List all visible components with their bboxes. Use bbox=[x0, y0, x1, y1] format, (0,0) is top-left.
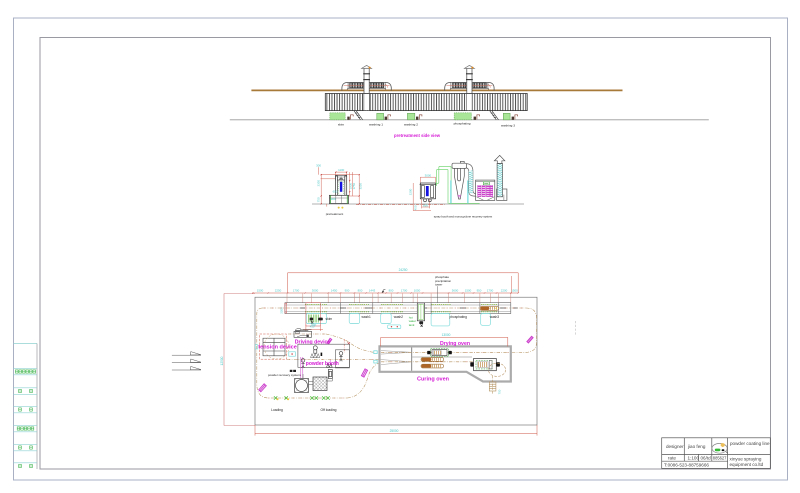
svg-text:tank: tank bbox=[409, 323, 415, 327]
svg-text:25000: 25000 bbox=[390, 429, 399, 433]
svg-text:2250: 2250 bbox=[275, 289, 282, 293]
svg-text:1700: 1700 bbox=[401, 289, 408, 293]
svg-text:900: 900 bbox=[331, 197, 336, 201]
svg-text:powder recovery system: powder recovery system bbox=[268, 373, 301, 377]
svg-text:3000: 3000 bbox=[425, 173, 432, 177]
svg-text:1750: 1750 bbox=[352, 183, 356, 190]
svg-text:Off loading: Off loading bbox=[321, 408, 337, 412]
svg-text:skim: skim bbox=[338, 122, 345, 126]
svg-text:Drying oven: Drying oven bbox=[440, 341, 470, 347]
svg-text:T:0086-523-88759666: T:0086-523-88759666 bbox=[664, 463, 709, 468]
svg-text:2200: 2200 bbox=[409, 188, 413, 195]
svg-text:900: 900 bbox=[345, 289, 350, 293]
svg-text:tension device: tension device bbox=[258, 344, 297, 350]
svg-text:1500: 1500 bbox=[257, 289, 264, 293]
svg-text:spray booth and monocyclone re: spray booth and monocyclone recovery sys… bbox=[434, 215, 493, 219]
svg-text:jiao feng: jiao feng bbox=[687, 444, 706, 449]
svg-text:885627: 885627 bbox=[713, 455, 727, 460]
svg-text:3000: 3000 bbox=[312, 289, 319, 293]
svg-text:450: 450 bbox=[310, 324, 315, 328]
svg-text:2350: 2350 bbox=[316, 180, 320, 187]
svg-text:designer: designer bbox=[666, 444, 684, 449]
svg-text:1100: 1100 bbox=[338, 168, 345, 172]
svg-text:12500: 12500 bbox=[220, 356, 224, 365]
svg-text:1500: 1500 bbox=[511, 289, 518, 293]
svg-text:450: 450 bbox=[413, 205, 417, 210]
svg-text:2200: 2200 bbox=[501, 289, 508, 293]
svg-text:wash3: wash3 bbox=[490, 315, 499, 319]
svg-text:pretreatment side view: pretreatment side view bbox=[394, 133, 441, 138]
svg-text:powder booth: powder booth bbox=[306, 361, 339, 367]
svg-text:06/td: 06/td bbox=[701, 456, 712, 461]
svg-text:phosphating: phosphating bbox=[454, 122, 471, 126]
svg-text:xinyue spraying: xinyue spraying bbox=[730, 456, 762, 461]
svg-text:washing 2: washing 2 bbox=[404, 122, 418, 126]
svg-text:600: 600 bbox=[333, 189, 338, 193]
svg-text:850: 850 bbox=[423, 203, 428, 207]
svg-text:5600: 5600 bbox=[452, 289, 459, 293]
svg-text:1500: 1500 bbox=[465, 289, 472, 293]
svg-text:800: 800 bbox=[358, 289, 363, 293]
svg-text:washing 3: washing 3 bbox=[501, 123, 515, 127]
svg-text:1050: 1050 bbox=[414, 289, 421, 293]
svg-text:skim: skim bbox=[326, 317, 333, 321]
svg-text:950: 950 bbox=[477, 289, 482, 293]
svg-text:equipment co.ltd: equipment co.ltd bbox=[730, 462, 764, 467]
svg-text:wash1: wash1 bbox=[362, 315, 371, 319]
svg-text:rate: rate bbox=[668, 456, 676, 461]
svg-text:800: 800 bbox=[389, 289, 394, 293]
svg-text:300: 300 bbox=[316, 164, 321, 168]
svg-text:1443: 1443 bbox=[369, 289, 376, 293]
svg-text:powder coating line: powder coating line bbox=[730, 441, 770, 446]
svg-text:tower: tower bbox=[435, 282, 442, 286]
svg-text:13000: 13000 bbox=[442, 333, 451, 337]
svg-text:Driving device: Driving device bbox=[295, 340, 331, 346]
svg-text:750: 750 bbox=[316, 197, 320, 202]
svg-text:washing 1: washing 1 bbox=[369, 122, 383, 126]
svg-text:Curing oven: Curing oven bbox=[417, 376, 449, 382]
svg-text:1450: 1450 bbox=[331, 289, 338, 293]
svg-text:wash2: wash2 bbox=[394, 315, 403, 319]
svg-text:3250: 3250 bbox=[358, 183, 362, 190]
svg-text:phosphating: phosphating bbox=[450, 315, 468, 319]
svg-text:1700: 1700 bbox=[487, 289, 494, 293]
svg-text:Loading: Loading bbox=[271, 408, 283, 412]
svg-text:1:100: 1:100 bbox=[688, 456, 700, 461]
svg-text:24250: 24250 bbox=[399, 268, 408, 272]
svg-text:750: 750 bbox=[498, 389, 502, 394]
svg-text:1700: 1700 bbox=[293, 289, 300, 293]
svg-text:pretreatment: pretreatment bbox=[326, 212, 344, 216]
